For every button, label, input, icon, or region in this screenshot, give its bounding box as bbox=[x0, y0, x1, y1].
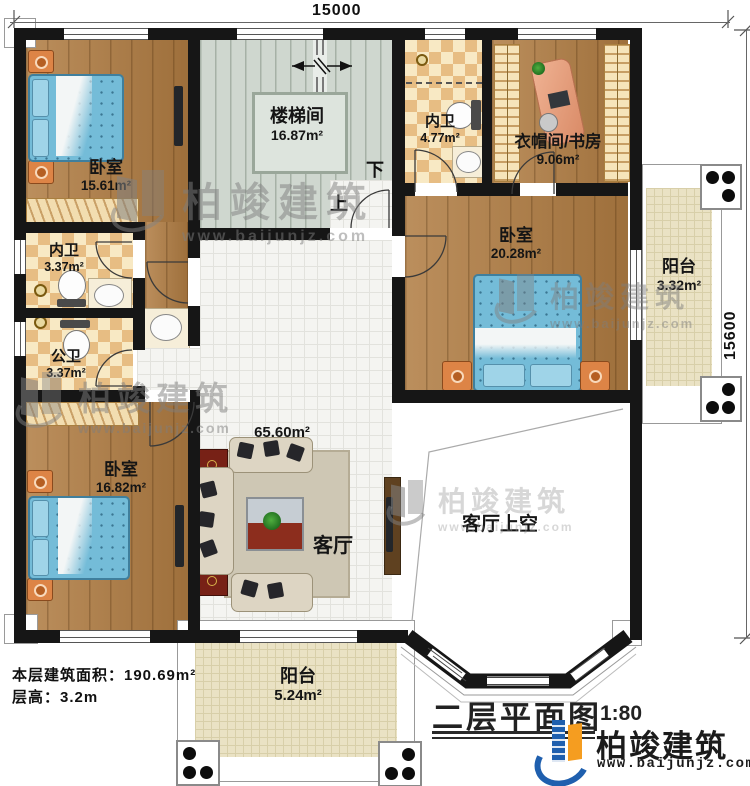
wall bbox=[188, 306, 200, 346]
shower-fixture bbox=[416, 54, 428, 66]
wall bbox=[133, 230, 145, 240]
bay-glass-right bbox=[573, 652, 606, 677]
toilet-tank bbox=[471, 100, 481, 130]
wall bbox=[630, 28, 642, 250]
wall bbox=[133, 278, 145, 308]
wall bbox=[397, 390, 642, 403]
wall bbox=[357, 630, 408, 643]
bay-glass-lines bbox=[428, 648, 609, 685]
wall bbox=[188, 402, 200, 630]
room-label-bedroom-southwest: 卧室 16.82m² bbox=[96, 460, 146, 496]
wall bbox=[630, 340, 642, 640]
room-area: 65.60m² bbox=[254, 424, 310, 442]
room-name: 客厅 bbox=[313, 535, 353, 559]
floor-plan-canvas: 15000 15600 卧室 15.61m² 楼梯间 16.87m² 内卫 4.… bbox=[0, 0, 750, 786]
room-label-shared-bath: 公卫 3.37m² bbox=[46, 348, 86, 380]
footer-floor-height: 层高：3.2m bbox=[12, 686, 98, 707]
wall bbox=[190, 390, 200, 402]
wall bbox=[392, 40, 405, 236]
room-area: 16.87m² bbox=[270, 127, 324, 144]
wall bbox=[26, 308, 145, 318]
living-void-label: 客厅上空 bbox=[462, 514, 538, 536]
bay-wall bbox=[408, 636, 628, 681]
room-name: 阳台 bbox=[274, 666, 322, 687]
wall bbox=[200, 228, 330, 240]
pillow bbox=[483, 364, 525, 387]
wall bbox=[233, 630, 240, 643]
room-area: 3.37m² bbox=[46, 366, 86, 381]
room-name: 内卫 bbox=[44, 242, 84, 260]
window bbox=[237, 28, 323, 40]
room-area: 9.06m² bbox=[514, 152, 601, 168]
room-name: 卧室 bbox=[491, 226, 541, 246]
sofa-cushion bbox=[267, 582, 284, 599]
room-name: 客厅上空 bbox=[462, 514, 538, 536]
room-name: 公卫 bbox=[46, 348, 86, 366]
wash-basin bbox=[94, 284, 124, 307]
bed-sheet bbox=[475, 328, 576, 364]
column-marker bbox=[176, 740, 220, 786]
room-label-closet-study: 衣帽间/书房 9.06m² bbox=[514, 133, 601, 168]
balcony-door-south bbox=[240, 630, 357, 643]
vestibule-floor bbox=[145, 222, 188, 308]
toilet-tank bbox=[60, 320, 90, 328]
room-name: 楼梯间 bbox=[270, 106, 324, 127]
balcony-door-east bbox=[630, 250, 642, 340]
tv-bedroom-southwest bbox=[175, 505, 184, 567]
wall bbox=[392, 277, 405, 403]
room-label-bedroom-east: 卧室 20.28m² bbox=[491, 226, 541, 262]
toilet bbox=[58, 270, 86, 301]
shower-fixture bbox=[34, 284, 47, 297]
bed-sheet bbox=[56, 76, 92, 156]
wash-basin bbox=[456, 151, 481, 173]
room-label-ensuite-north: 内卫 4.77m² bbox=[420, 113, 460, 145]
room-name: 内卫 bbox=[420, 113, 460, 131]
stair-up-label: 上 bbox=[330, 190, 348, 216]
pillow bbox=[32, 539, 49, 576]
brand-url: www.baijunjz.com bbox=[597, 756, 750, 772]
tv-bedroom-top-left bbox=[174, 86, 183, 146]
room-label-balcony-south: 阳台 5.24m² bbox=[274, 666, 322, 705]
pillow bbox=[32, 79, 49, 117]
sofa-cushion bbox=[198, 511, 215, 528]
nightstand bbox=[580, 361, 610, 391]
nightstand bbox=[28, 50, 54, 73]
bay-sill-outer bbox=[401, 647, 636, 695]
wash-basin bbox=[150, 314, 182, 341]
window bbox=[518, 28, 596, 40]
room-name: 衣帽间/书房 bbox=[514, 133, 601, 152]
window bbox=[14, 322, 26, 356]
window bbox=[64, 28, 148, 40]
wall bbox=[457, 183, 520, 196]
pillow bbox=[32, 119, 49, 157]
dimension-top: 15000 bbox=[312, 2, 362, 20]
pillow bbox=[32, 500, 49, 537]
bay-glass-left bbox=[430, 652, 463, 677]
wall bbox=[14, 222, 145, 233]
closet-rail-right bbox=[604, 44, 630, 182]
column-marker bbox=[378, 741, 422, 786]
tv-living bbox=[386, 497, 393, 552]
column-marker bbox=[700, 376, 742, 422]
room-name: 卧室 bbox=[96, 460, 146, 480]
room-area: 20.28m² bbox=[491, 246, 541, 262]
nightstand bbox=[28, 160, 54, 184]
wall bbox=[188, 40, 200, 258]
dimension-right: 15600 bbox=[722, 311, 740, 361]
wall bbox=[397, 183, 415, 196]
room-area: 16.82m² bbox=[96, 480, 146, 496]
stair-down-label: 下 bbox=[366, 156, 384, 182]
window bbox=[425, 28, 465, 40]
living-room-area-label: 65.60m² bbox=[254, 424, 310, 442]
nightstand bbox=[442, 361, 472, 391]
room-label-stairwell: 楼梯间 16.87m² bbox=[270, 106, 324, 144]
window bbox=[60, 630, 150, 643]
pillow bbox=[530, 364, 572, 387]
room-label-ensuite-west: 内卫 3.37m² bbox=[44, 242, 84, 274]
desk-plant bbox=[532, 62, 545, 75]
room-name: 阳台 bbox=[657, 257, 701, 277]
nightstand bbox=[27, 470, 53, 493]
room-area: 4.77m² bbox=[420, 131, 460, 146]
bed-sheet bbox=[58, 498, 92, 574]
room-area: 3.32m² bbox=[657, 277, 701, 294]
desk-chair bbox=[539, 113, 558, 132]
room-area: 15.61m² bbox=[81, 178, 131, 194]
wall bbox=[482, 40, 492, 183]
room-name: 卧室 bbox=[81, 158, 131, 178]
wall bbox=[133, 318, 145, 350]
dimension-line-top bbox=[10, 22, 730, 23]
wall bbox=[14, 390, 145, 402]
table-plant bbox=[263, 512, 281, 530]
toilet-tank bbox=[57, 299, 86, 307]
wardrobe-southwest bbox=[26, 402, 139, 426]
room-area: 3.37m² bbox=[44, 260, 84, 275]
corridor-patch-floor bbox=[137, 348, 200, 390]
nightstand bbox=[27, 578, 53, 601]
room-area: 5.24m² bbox=[274, 687, 322, 705]
room-label-bedroom-top-left: 卧室 15.61m² bbox=[81, 158, 131, 194]
room-label-balcony-east: 阳台 3.32m² bbox=[657, 257, 701, 294]
wall bbox=[556, 183, 628, 196]
footer-floor-area: 本层建筑面积：190.69m² bbox=[12, 664, 196, 685]
sofa-cushion bbox=[263, 440, 280, 457]
shower-curtain bbox=[406, 82, 482, 84]
dimension-line-right bbox=[746, 30, 747, 638]
sofa-cushion bbox=[237, 442, 255, 460]
living-room-name-label: 客厅 bbox=[313, 535, 353, 559]
brand-logo-icon bbox=[538, 718, 592, 778]
window bbox=[14, 240, 26, 274]
column-marker bbox=[700, 164, 742, 210]
